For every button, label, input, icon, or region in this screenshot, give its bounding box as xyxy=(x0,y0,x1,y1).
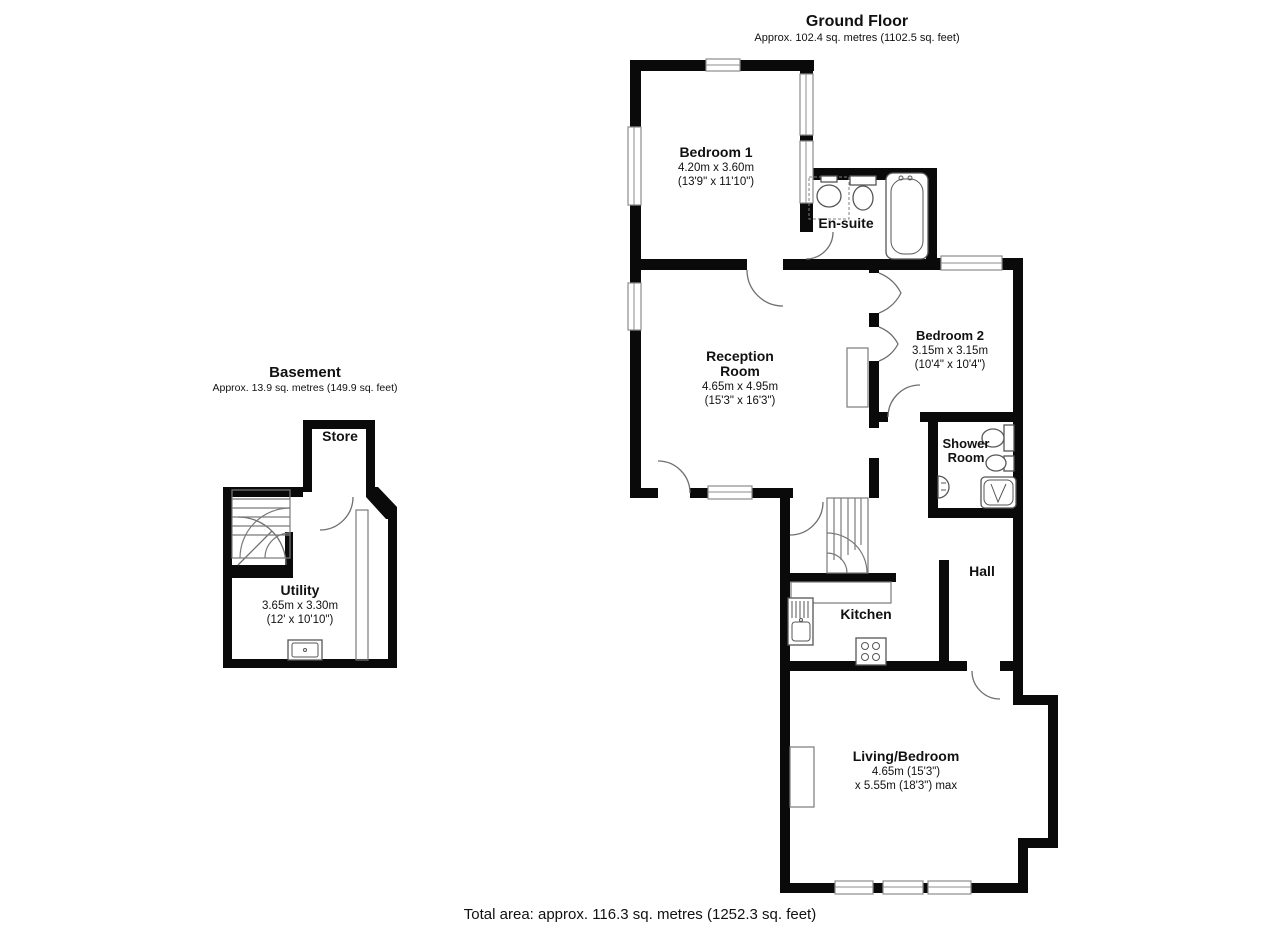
window-icon xyxy=(628,127,641,205)
shower-tray-icon xyxy=(981,477,1016,508)
toilet-icon xyxy=(850,176,876,210)
room-label-shower-room: Shower Room xyxy=(943,436,990,466)
ground-floor-title: Ground Floor xyxy=(754,12,959,32)
doors xyxy=(238,232,1000,699)
wash-basin-icon xyxy=(938,476,949,498)
room-label-bedroom-2: Bedroom 2 3.15m x 3.15m (10'4" x 10'4") xyxy=(912,328,988,372)
room-label-bedroom-1: Bedroom 1 4.20m x 3.60m (13'9" x 11'10") xyxy=(678,144,754,189)
basement-title: Basement xyxy=(212,364,397,382)
window-icon xyxy=(800,74,813,135)
room-label-ensuite: En-suite xyxy=(818,215,873,232)
room-label-kitchen: Kitchen xyxy=(840,606,891,623)
door-arc xyxy=(790,502,823,535)
window-icon xyxy=(883,881,923,894)
room-label-reception: Reception Room 4.65m x 4.95m (15'3" x 16… xyxy=(702,348,778,408)
utility-counter xyxy=(356,510,368,660)
ground-floor-title-block: Ground Floor Approx. 102.4 sq. metres (1… xyxy=(754,12,959,45)
door-arc xyxy=(806,232,833,259)
bidet-icon xyxy=(986,455,1014,471)
door-arc xyxy=(972,671,1000,699)
ground-floor-staircase-icon xyxy=(827,498,868,573)
window-icon xyxy=(800,141,813,203)
window-icon xyxy=(928,881,971,894)
room-label-store: Store xyxy=(322,428,358,445)
door-arc xyxy=(658,461,690,493)
room-label-hall: Hall xyxy=(969,563,995,580)
floor-plan-canvas xyxy=(0,0,1280,931)
floor-plan-page: Ground Floor Approx. 102.4 sq. metres (1… xyxy=(0,0,1280,931)
window-icon xyxy=(835,881,873,894)
door-arc xyxy=(879,327,898,361)
door-arc xyxy=(320,497,353,530)
room-label-living-bedroom: Living/Bedroom 4.65m (15'3") x 5.55m (18… xyxy=(853,748,960,793)
chimney-breast xyxy=(847,348,868,407)
hob-icon xyxy=(856,638,886,665)
sink-drainer-unit-icon xyxy=(788,598,813,645)
kitchen-fixtures xyxy=(788,582,891,665)
total-area-text: Total area: approx. 116.3 sq. metres (12… xyxy=(464,906,816,924)
door-arc xyxy=(879,273,901,313)
window-icon xyxy=(628,283,641,330)
basement-subtitle: Approx. 13.9 sq. metres (149.9 sq. feet) xyxy=(212,382,397,395)
window-icon xyxy=(941,256,1002,270)
window-icon xyxy=(706,59,740,71)
bathtub-icon xyxy=(886,173,928,259)
basement-staircase-icon xyxy=(232,490,290,558)
basement-title-block: Basement Approx. 13.9 sq. metres (149.9 … xyxy=(212,364,397,395)
chimney-recess xyxy=(790,747,814,807)
door-arc xyxy=(888,385,920,417)
room-label-utility: Utility 3.65m x 3.30m (12' x 10'10") xyxy=(262,582,338,627)
wash-basin-icon xyxy=(817,176,841,207)
window-icon xyxy=(708,486,752,499)
door-arc xyxy=(747,270,783,306)
ground-floor-subtitle: Approx. 102.4 sq. metres (1102.5 sq. fee… xyxy=(754,32,959,45)
utility-sink-icon xyxy=(288,640,322,660)
basement-walls xyxy=(223,420,397,668)
